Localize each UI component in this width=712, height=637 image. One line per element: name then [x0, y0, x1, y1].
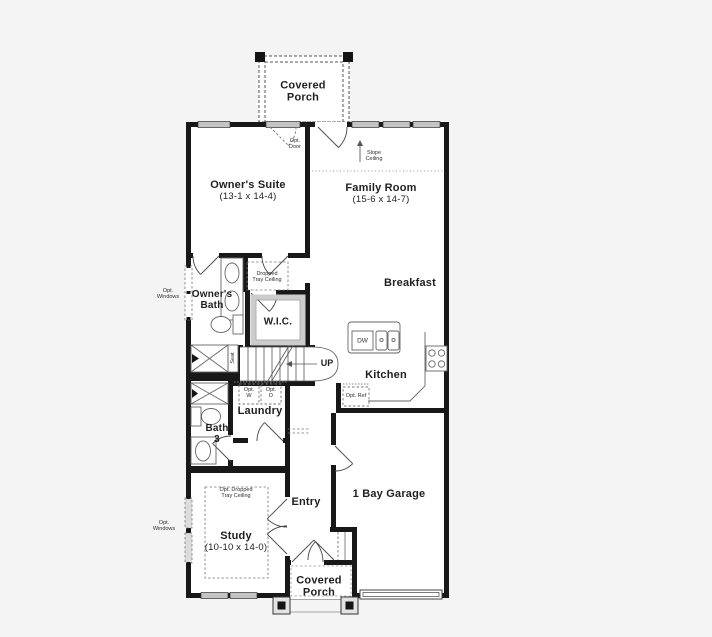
annotation-up: UP [321, 358, 334, 368]
annotation-opt-ref: Opt. Ref [342, 393, 370, 399]
porch-post [343, 52, 353, 62]
room-label-covered-porch-top: Covered Porch [274, 80, 332, 105]
room-label-wic: W.I.C. [264, 316, 292, 327]
window [413, 122, 440, 128]
room-label-bath3: Bath 3 [204, 423, 230, 445]
porch-post-core [346, 602, 354, 610]
room-label-owners-suite: Owner's Suite (13-1 x 14-4) [210, 179, 286, 203]
annotation-opt-door: Opt. Door [285, 138, 305, 150]
floor-plan-drawing [0, 0, 712, 637]
annotation-opt-dryer: Opt. D [264, 387, 278, 399]
room-label-covered-porch-bottom: Covered Porch [290, 575, 348, 600]
room-label-study: Study (10-10 x 14-0) [205, 530, 267, 554]
range [426, 346, 447, 371]
annotation-dropped-tray-ceiling: Dropped Tray Ceiling [251, 271, 283, 283]
window [352, 122, 379, 128]
window [266, 122, 300, 128]
window [198, 122, 230, 128]
window [383, 122, 410, 128]
toilet-tank [233, 315, 243, 334]
floor-plan: Covered Porch Opt. Door Slope Ceiling Ow… [0, 0, 712, 637]
porch-post [255, 52, 265, 62]
room-label-breakfast: Breakfast [384, 277, 436, 289]
annotation-opt-windows-study: Opt. Windows [150, 520, 178, 532]
porch-post-core [278, 602, 286, 610]
annotation-seat: Seat [230, 352, 236, 363]
garage-door [360, 590, 442, 599]
sink-drain [380, 338, 383, 341]
room-label-garage: 1 Bay Garage [353, 488, 426, 500]
annotation-dw: DW [357, 337, 368, 344]
window [230, 593, 257, 599]
garage-door-outer [360, 590, 442, 599]
room-label-entry: Entry [291, 496, 320, 508]
annotation-opt-dropped-tray-ceiling: Opt. Dropped Tray Ceiling [215, 487, 257, 499]
toilet-bowl [211, 317, 231, 333]
room-label-kitchen: Kitchen [365, 369, 407, 381]
window [201, 593, 228, 599]
annotation-opt-windows-bath: Opt. Windows [154, 288, 182, 300]
toilet-tank [191, 407, 201, 426]
room-label-owners-bath: Owner's Bath [188, 289, 236, 311]
room-label-family-room: Family Room (15-6 x 14-7) [345, 182, 416, 206]
room-label-laundry: Laundry [238, 405, 283, 417]
annotation-opt-washer: Opt. W [242, 387, 256, 399]
annotation-slope-ceiling: Slope Ceiling [362, 150, 386, 162]
sink-drain [392, 338, 395, 341]
